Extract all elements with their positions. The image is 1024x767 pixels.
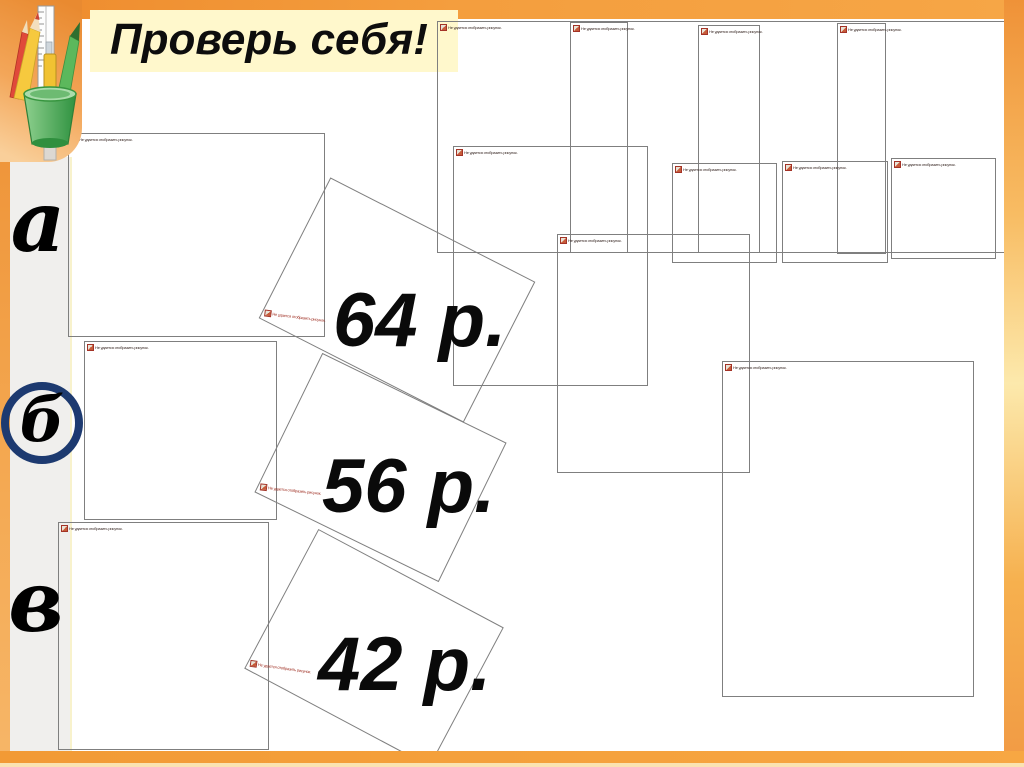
- broken-image-text: Не удается отобразить рисунок.: [258, 662, 312, 674]
- placeholder-box-sq-1: Не удается отобразить рисунок.: [672, 163, 777, 263]
- broken-image-icon: [440, 24, 447, 31]
- broken-image-icon: [250, 660, 258, 668]
- row-label-v: в: [8, 560, 64, 644]
- pencil-cup-image: [0, 2, 84, 162]
- broken-image-chip: Не удается отобразить рисунок.: [87, 344, 149, 351]
- frame-bottom-bar: [0, 751, 1024, 767]
- broken-image-icon: [840, 26, 847, 33]
- broken-image-icon: [264, 309, 272, 317]
- broken-image-chip: Не удается отобразить рисунок.: [675, 166, 737, 173]
- frame-right-bar: [1004, 0, 1024, 767]
- broken-image-icon: [87, 344, 94, 351]
- broken-image-chip: Не удается отобразить рисунок.: [785, 164, 847, 171]
- broken-image-text: Не удается отобразить рисунок.: [272, 311, 326, 322]
- broken-image-chip: Не удается отобразить рисунок.: [260, 483, 322, 496]
- broken-image-text: Не удается отобразить рисунок.: [793, 165, 847, 170]
- placeholder-box-large: Не удается отобразить рисунок.: [722, 361, 974, 697]
- broken-image-text: Не удается отобразить рисунок.: [448, 25, 502, 30]
- broken-image-chip: Не удается отобразить рисунок.: [250, 660, 312, 675]
- price-42: 42 р.: [318, 627, 491, 703]
- broken-image-icon: [725, 364, 732, 371]
- broken-image-chip: Не удается отобразить рисунок.: [560, 237, 622, 244]
- broken-image-chip: Не удается отобразить рисунок.: [456, 149, 518, 156]
- broken-image-text: Не удается отобразить рисунок.: [95, 345, 149, 350]
- row-label-b-circle: б: [1, 382, 83, 464]
- broken-image-text: Не удается отобразить рисунок.: [568, 238, 622, 243]
- corner-art: [0, 0, 82, 162]
- slide-page: Проверь себя! а б в Не удается отобразит…: [0, 0, 1024, 767]
- broken-image-chip: Не удается отобразить рисунок.: [440, 24, 502, 31]
- broken-image-text: Не удается отобразить рисунок.: [848, 27, 902, 32]
- broken-image-chip: Не удается отобразить рисунок.: [840, 26, 902, 33]
- row-label-b: б: [20, 389, 65, 451]
- broken-image-icon: [560, 237, 567, 244]
- broken-image-chip: Не удается отобразить рисунок.: [725, 364, 787, 371]
- broken-image-text: Не удается отобразить рисунок.: [464, 150, 518, 155]
- broken-image-text: Не удается отобразить рисунок.: [79, 137, 133, 142]
- broken-image-icon: [675, 166, 682, 173]
- broken-image-text: Не удается отобразить рисунок.: [733, 365, 787, 370]
- broken-image-icon: [61, 525, 68, 532]
- broken-image-text: Не удается отобразить рисунок.: [69, 526, 123, 531]
- broken-image-chip: Не удается отобразить рисунок.: [894, 161, 956, 168]
- placeholder-box-b: Не удается отобразить рисунок.: [84, 341, 277, 520]
- placeholder-box-sq-2: Не удается отобразить рисунок.: [782, 161, 888, 263]
- title-banner: Проверь себя!: [90, 10, 458, 72]
- price-56: 56 р.: [322, 449, 495, 525]
- broken-image-chip: Не удается отобразить рисунок.: [701, 28, 763, 35]
- row-label-a: а: [10, 180, 66, 264]
- broken-image-icon: [260, 483, 268, 491]
- broken-image-text: Не удается отобразить рисунок.: [581, 26, 635, 31]
- price-64: 64 р.: [333, 283, 506, 359]
- broken-image-text: Не удается отобразить рисунок.: [268, 485, 322, 496]
- broken-image-chip: Не удается отобразить рисунок.: [61, 525, 123, 532]
- broken-image-text: Не удается отобразить рисунок.: [902, 162, 956, 167]
- broken-image-chip: Не удается отобразить рисунок.: [264, 309, 326, 323]
- broken-image-icon: [894, 161, 901, 168]
- broken-image-icon: [785, 164, 792, 171]
- slide-title: Проверь себя!: [110, 15, 428, 65]
- broken-image-icon: [573, 25, 580, 32]
- broken-image-icon: [456, 149, 463, 156]
- broken-image-chip: Не удается отобразить рисунок.: [573, 25, 635, 32]
- broken-image-icon: [701, 28, 708, 35]
- placeholder-box-sq-3: Не удается отобразить рисунок.: [891, 158, 996, 259]
- broken-image-text: Не удается отобразить рисунок.: [709, 29, 763, 34]
- placeholder-box-v: Не удается отобразить рисунок.: [58, 522, 269, 750]
- broken-image-text: Не удается отобразить рисунок.: [683, 167, 737, 172]
